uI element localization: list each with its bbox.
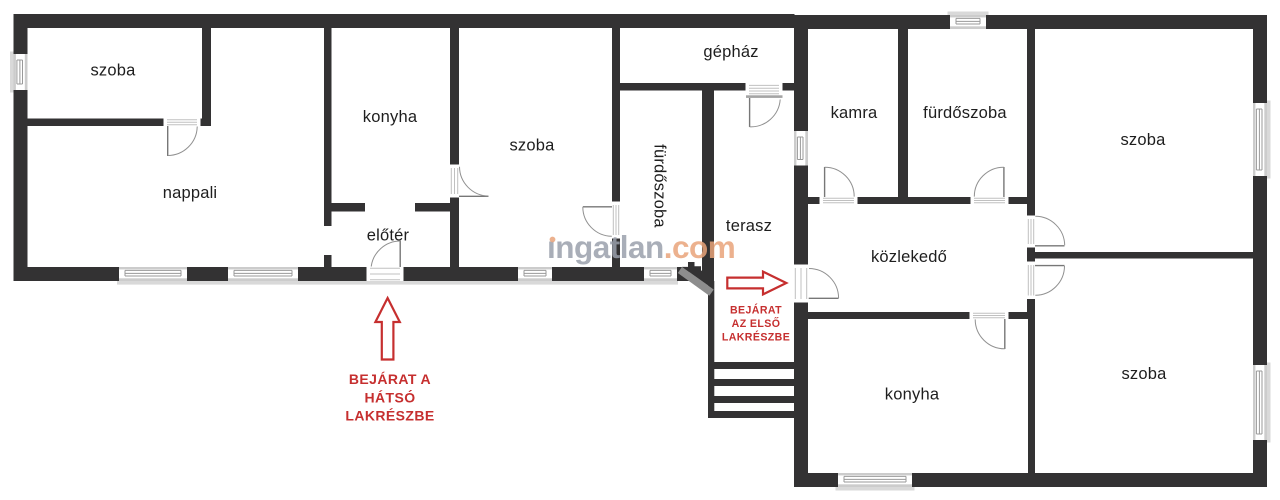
svg-text:gépház: gépház xyxy=(703,43,758,61)
svg-text:szoba: szoba xyxy=(509,137,555,155)
svg-text:szoba: szoba xyxy=(1121,365,1167,383)
svg-text:BEJÁRAT: BEJÁRAT xyxy=(730,304,782,317)
svg-text:konyha: konyha xyxy=(885,386,940,404)
svg-text:konyha: konyha xyxy=(363,108,418,126)
svg-text:AZ ELSŐ: AZ ELSŐ xyxy=(732,317,781,330)
svg-text:BEJÁRAT A: BEJÁRAT A xyxy=(349,371,431,387)
svg-text:LAKRÉSZBE: LAKRÉSZBE xyxy=(345,408,434,424)
svg-text:kamra: kamra xyxy=(831,104,878,122)
svg-text:szoba: szoba xyxy=(90,62,136,80)
svg-text:nappali: nappali xyxy=(163,184,218,202)
svg-text:LAKRÉSZBE: LAKRÉSZBE xyxy=(722,331,790,344)
svg-text:közlekedő: közlekedő xyxy=(871,248,947,266)
svg-text:előtér: előtér xyxy=(367,227,410,245)
svg-text:fürdőszoba: fürdőszoba xyxy=(923,104,1007,122)
svg-text:fürdőszoba: fürdőszoba xyxy=(651,144,669,228)
svg-text:ıngatlan.com: ıngatlan.com xyxy=(547,229,735,265)
svg-text:szoba: szoba xyxy=(1120,131,1166,149)
svg-text:HÁTSÓ: HÁTSÓ xyxy=(365,389,416,406)
